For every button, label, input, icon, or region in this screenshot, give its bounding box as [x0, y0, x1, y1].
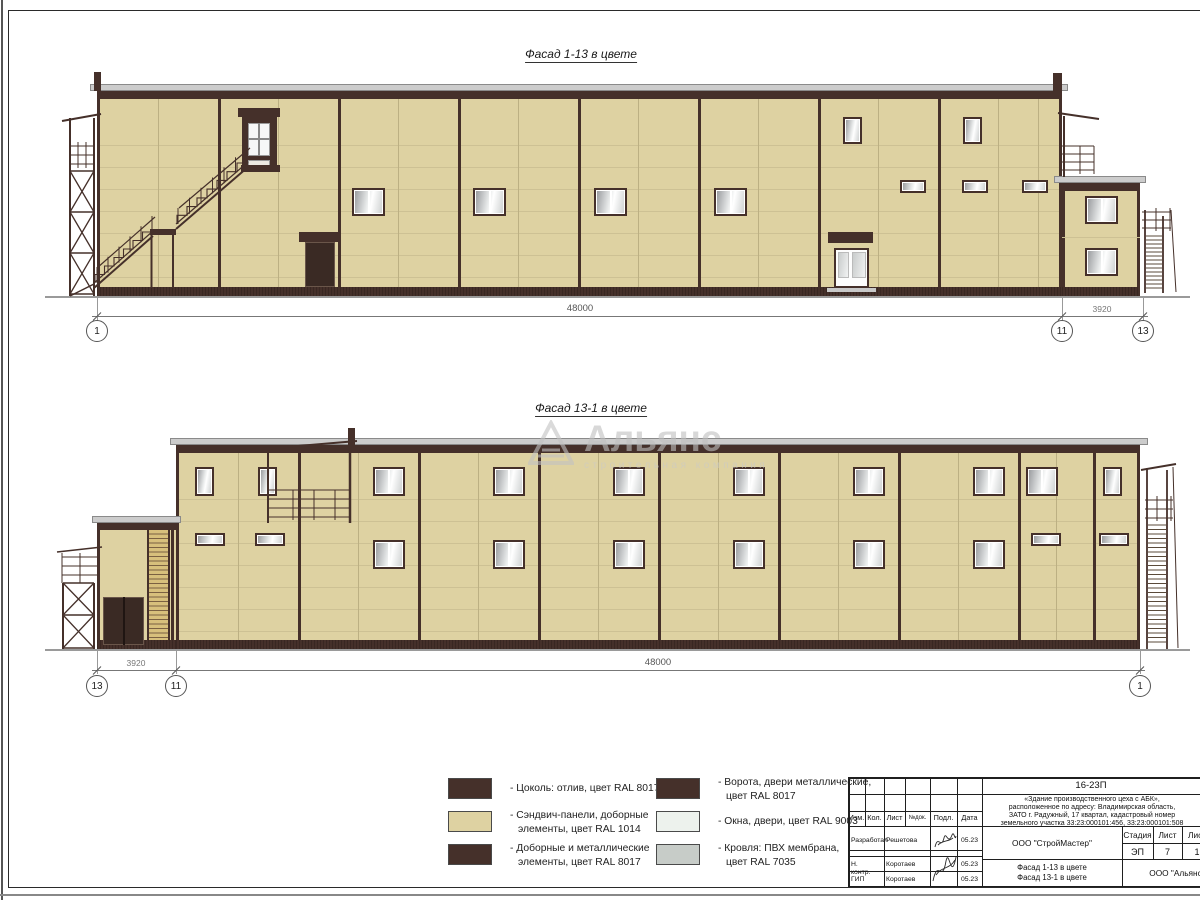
dim-label-3920-top: 3920	[1093, 304, 1112, 314]
stair-door-lintel	[238, 108, 280, 117]
ground-line	[45, 649, 1190, 651]
dim-label-3920-bottom: 3920	[127, 658, 146, 668]
window-glass	[1105, 469, 1120, 494]
window-mullion	[1101, 198, 1103, 222]
panel-joint-dark	[338, 99, 341, 287]
legend-text: - Окна, двери, цвет RAL 9003	[718, 815, 858, 829]
entrance-canopy	[828, 232, 873, 243]
panel-joint-light	[598, 453, 599, 640]
legend-text-line: - Окна, двери, цвет RAL 9003	[718, 815, 858, 829]
window-glass	[197, 469, 212, 494]
panel-joint-dark	[538, 453, 541, 640]
axis-marker-13-bottom: 13	[86, 675, 108, 697]
panel-joint-light	[158, 99, 159, 287]
panel-joint-dark	[818, 99, 821, 287]
window-mullion	[628, 542, 630, 567]
glass-muntin	[258, 123, 260, 156]
tb-stage-value: ЭП	[1122, 847, 1153, 857]
legend-swatch	[448, 778, 492, 799]
panel-joint-light	[878, 99, 879, 287]
title-block-line	[1122, 843, 1200, 844]
ext-line	[97, 651, 98, 674]
legend-text: - Цоколь: отлив, цвет RAL 8017	[510, 782, 659, 796]
legend-swatch	[656, 811, 700, 832]
legend-text-line: элементы, цвет RAL 8017	[510, 856, 650, 870]
window-mullion	[508, 542, 510, 567]
window-glass	[902, 182, 924, 191]
tb-doc-code: 16-23П	[982, 781, 1200, 792]
tb-row-role: ГИП	[851, 876, 864, 884]
panel-joint-dark	[218, 99, 221, 287]
panel-joint-light	[238, 453, 239, 640]
stair-platform	[241, 165, 280, 172]
window-glass	[845, 119, 860, 142]
legend-text-line: - Доборные и металлические	[510, 842, 650, 856]
tb-col-podl: Подл.	[930, 814, 957, 822]
ext-line	[1143, 298, 1144, 321]
legend-text: - Кровля: ПВХ мембрана,цвет RAL 7035	[718, 842, 839, 869]
legend-text: - Сэндвич-панели, доборныеэлементы, цвет…	[510, 809, 648, 836]
panel-joint-light	[278, 99, 279, 287]
panel-joint-light	[1038, 99, 1039, 287]
tb-desc-line: ЗАТО г. Радужный, 17 квартал, кадастровы…	[984, 812, 1200, 820]
axis-marker-13-top: 13	[1132, 320, 1154, 342]
roof-coping	[170, 438, 1148, 445]
tb-desc-line: расположенное по адресу: Владимирская об…	[984, 804, 1200, 812]
panel-joint-light	[358, 453, 359, 640]
title-block-line	[848, 811, 982, 812]
tb-sheets-total: 1	[1182, 847, 1200, 857]
panel-joint-dark	[658, 453, 661, 640]
window-mullion	[610, 190, 612, 214]
tb-org2: ООО "Альянс"	[1122, 869, 1200, 879]
window-mullion	[988, 542, 990, 567]
tb-sheet-number: 7	[1153, 847, 1182, 857]
window-glass	[1033, 535, 1059, 544]
window-mullion	[489, 190, 491, 214]
annex-coping	[1054, 176, 1146, 183]
roof-coping	[90, 84, 1068, 91]
wall-corner	[1062, 191, 1065, 287]
window-mullion	[1041, 469, 1043, 494]
panel-joint-light	[478, 453, 479, 640]
legend-text: - Доборные и металлическиеэлементы, цвет…	[510, 842, 650, 869]
title-block-line	[848, 886, 1200, 888]
parapet-post	[1053, 73, 1062, 92]
axis-marker-11-bottom: 11	[165, 675, 187, 697]
window-mullion	[368, 190, 370, 214]
window-glass	[260, 469, 275, 494]
tb-row-name: Решетова	[886, 837, 917, 845]
window-mullion	[508, 469, 510, 494]
title-block-line	[1122, 827, 1123, 887]
door-glass	[852, 252, 866, 278]
legend-text-line: - Цоколь: отлив, цвет RAL 8017	[510, 782, 659, 796]
panel-joint-light	[958, 453, 959, 640]
panel-joint-dark	[778, 453, 781, 640]
panel-joint-light	[998, 99, 999, 287]
tb-col-izm: Изм.	[848, 814, 865, 822]
tb-row-name: Коротаев	[886, 861, 915, 869]
facade-bottom-title: Фасад 13-1 в цвете	[535, 401, 647, 415]
tb-col-ndok: №док.	[905, 815, 930, 822]
panel-joint-light	[758, 99, 759, 287]
annex-fascia	[1062, 183, 1140, 191]
annex-coping	[92, 516, 181, 523]
legend-swatch	[448, 811, 492, 832]
panel-joint-dark	[1093, 453, 1096, 640]
dim-label-48000-bottom: 48000	[645, 657, 671, 668]
window-glass	[964, 182, 986, 191]
title-block-line	[848, 777, 1200, 779]
wall-corner	[1137, 453, 1140, 640]
title-block-line	[865, 777, 866, 826]
tb-desc-line: «Здание производственного цеха с АБК»,	[984, 796, 1200, 804]
glass-muntin	[248, 138, 270, 140]
window-glass	[257, 535, 283, 544]
panel-joint-h	[1062, 237, 1140, 238]
wall-corner	[97, 99, 100, 287]
gate-door-split	[123, 597, 125, 645]
facade-top-title: Фасад 1-13 в цвете	[525, 47, 637, 61]
facade-drawings	[0, 0, 1200, 900]
title-block-line	[848, 871, 982, 872]
dim-label-48000-top: 48000	[567, 303, 593, 314]
window-mullion	[628, 469, 630, 494]
parapet-post	[348, 428, 355, 446]
tb-col-data: Дата	[957, 814, 982, 822]
panel-joint-light	[718, 453, 719, 640]
door-metal	[305, 242, 335, 287]
axis-marker-11-top: 11	[1051, 320, 1073, 342]
window-mullion	[748, 469, 750, 494]
axis-marker-1-top: 1	[86, 320, 108, 342]
panel-joint-dark	[898, 453, 901, 640]
window-mullion	[868, 542, 870, 567]
roof-fascia	[176, 445, 1140, 453]
drawing-sheet: Альянс строительная компания Фасад 1-13 …	[0, 0, 1200, 900]
window-glass	[197, 535, 223, 544]
panel-joint-dark	[578, 99, 581, 287]
tb-row-date: 05.23	[957, 861, 982, 869]
tb-row-date: 05.23	[957, 837, 982, 845]
entrance-step	[827, 288, 876, 292]
tb-row-role: Разработал	[851, 837, 888, 845]
annex-fascia	[97, 523, 176, 530]
title-block-line	[848, 826, 1200, 827]
window-mullion	[1101, 250, 1103, 274]
panel-joint-dark	[1018, 453, 1021, 640]
wall-corner	[1137, 191, 1140, 287]
legend-text-line: элементы, цвет RAL 1014	[510, 823, 648, 837]
panel-joint-light	[518, 99, 519, 287]
plinth	[97, 287, 1062, 296]
window-mullion	[868, 469, 870, 494]
window-glass	[1024, 182, 1046, 191]
legend-swatch	[656, 844, 700, 865]
panel-joint-dark	[298, 453, 301, 640]
panel-joint-dark	[418, 453, 421, 640]
window-mullion	[388, 469, 390, 494]
window-glass	[965, 119, 980, 142]
ground-line	[45, 296, 1190, 298]
parapet-post	[94, 72, 101, 91]
wall-corner	[171, 530, 174, 640]
tb-stage-label: Стадия	[1122, 831, 1153, 841]
window-mullion	[730, 190, 732, 214]
dim-line	[92, 670, 1145, 671]
door-canopy	[299, 232, 340, 242]
tb-sheets-label: Лис	[1188, 831, 1200, 841]
stair-shaft	[147, 530, 170, 640]
title-block-line	[848, 794, 1200, 795]
legend-swatch	[656, 778, 700, 799]
window-mullion	[388, 542, 390, 567]
legend-text-line: - Кровля: ПВХ мембрана,	[718, 842, 839, 856]
title-block-line	[982, 859, 1200, 860]
axis-marker-1-bottom: 1	[1129, 675, 1151, 697]
stair-landing	[150, 229, 176, 235]
panel-joint-dark	[458, 99, 461, 287]
tb-row-date: 05.23	[957, 876, 982, 884]
dim-line	[92, 316, 1148, 317]
legend-text-line: цвет RAL 7035	[718, 856, 839, 870]
ext-line	[176, 651, 177, 674]
door-glass	[838, 252, 849, 278]
plinth	[176, 640, 1140, 649]
tb-row-name: Коротаев	[886, 876, 915, 884]
panel-joint-light	[838, 453, 839, 640]
title-block-line	[905, 777, 906, 826]
tb-row-role: Н. контр.	[851, 861, 870, 877]
tb-sheet-title-2: Фасад 13-1 в цвете	[982, 874, 1122, 883]
tb-col-kol: Кол.	[865, 814, 884, 822]
tb-sheet-title-1: Фасад 1-13 в цвете	[982, 864, 1122, 873]
title-block-line	[848, 856, 982, 857]
panel-joint-dark	[938, 99, 941, 287]
tb-sheet-label: Лист	[1153, 831, 1182, 841]
wall-corner	[97, 530, 100, 640]
plinth	[1062, 287, 1140, 296]
tb-org: ООО "СтройМастер"	[982, 839, 1122, 849]
ext-line	[1062, 298, 1063, 321]
window-mullion	[748, 542, 750, 567]
panel-joint-light	[398, 99, 399, 287]
ext-line	[97, 298, 98, 321]
roof-fascia	[97, 91, 1062, 99]
panel-joint-light	[638, 99, 639, 287]
wall-corner	[176, 453, 179, 640]
tb-col-list: Лист	[884, 814, 905, 822]
ext-line	[1140, 651, 1141, 674]
panel-joint-dark	[698, 99, 701, 287]
title-block-line	[848, 850, 982, 851]
window-mullion	[988, 469, 990, 494]
window-glass	[1101, 535, 1127, 544]
legend-text-line: - Сэндвич-панели, доборные	[510, 809, 648, 823]
legend-swatch	[448, 844, 492, 865]
